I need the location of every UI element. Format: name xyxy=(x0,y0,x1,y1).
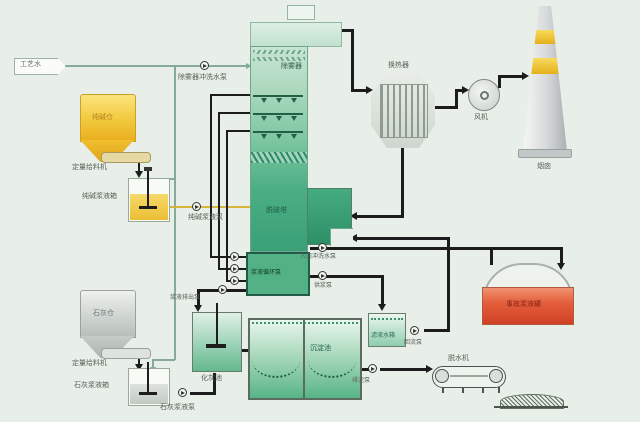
circ-bottom-1 xyxy=(210,256,247,258)
drain-line-v2 xyxy=(490,249,493,265)
sludge-pump-icon xyxy=(368,364,377,373)
discharge-pump-label: 浆液排出泵 xyxy=(170,295,200,302)
gas-arrow-into-ggh xyxy=(366,86,373,94)
water-branch-lime-h xyxy=(152,359,175,361)
slaking-agitator-paddle xyxy=(206,344,226,348)
lime-agitator-paddle xyxy=(139,392,157,395)
emergency-tank-label: 事故浆液罐 xyxy=(506,301,541,309)
lime-feeder xyxy=(101,348,151,359)
circ-pumps-label: 浆液循环泵 xyxy=(251,270,281,277)
spray-header-2 xyxy=(253,113,303,115)
return-line-h2 xyxy=(357,237,448,240)
soda-pump-icon xyxy=(192,202,201,211)
slaking-tank-label: 化灰池 xyxy=(201,375,222,383)
sludge-line-h2 xyxy=(380,368,428,371)
spray-nozzle xyxy=(261,98,267,103)
spray-nozzle xyxy=(276,98,282,103)
fan-hub xyxy=(480,91,489,100)
spray-nozzle xyxy=(276,116,282,121)
heat-exchanger-label: 换热器 xyxy=(388,62,409,70)
supply-pump-label: 供浆泵 xyxy=(314,283,332,290)
spray-nozzle xyxy=(291,134,297,139)
soda-silo-label: 纯碱仓 xyxy=(92,114,113,122)
dewaterer-label: 脱水机 xyxy=(448,355,469,363)
tower-packing xyxy=(251,152,307,163)
ground-line xyxy=(494,406,568,408)
return-line-v xyxy=(447,237,450,332)
lime-silo-label: 石灰仓 xyxy=(93,310,114,318)
discharge-pump-icon xyxy=(218,285,227,294)
gas-arrow-into-stack xyxy=(522,72,529,80)
spray-nozzle xyxy=(261,116,267,121)
chimney-base xyxy=(518,149,572,158)
circ-top-2 xyxy=(218,112,253,114)
spray-header-3 xyxy=(253,131,303,133)
chimney-band-2 xyxy=(523,58,567,74)
mist-eliminator-band-1 xyxy=(253,50,305,54)
tower-inlet-notch xyxy=(330,228,353,246)
dewaterer-roller-right xyxy=(489,369,503,383)
tower-top-box xyxy=(287,5,315,20)
tower-label: 脱硫塔 xyxy=(266,207,287,215)
dewaterer-roller-left xyxy=(435,369,449,383)
supply-pump-icon xyxy=(318,271,327,280)
filtrate-weir xyxy=(371,318,403,320)
inlet-wash-pump-label: 入口冲洗水泵 xyxy=(300,254,336,261)
feeder-drop-top-arrow xyxy=(135,171,143,178)
process-water-label: 工艺水 xyxy=(20,61,41,69)
process-flow-diagram: 工艺水 纯碱仓 定量给料机 纯碱浆液箱 纯碱浆液泵 除雾器冲洗水泵 除雾器 脱硫… xyxy=(0,0,640,422)
mist-eliminator-label: 除雾器 xyxy=(281,63,302,71)
fan-label: 风机 xyxy=(474,114,488,122)
sludge-pump-label: 排泥泵 xyxy=(352,378,370,385)
heat-exchanger-tubes xyxy=(380,84,428,138)
return-pump-icon xyxy=(410,326,419,335)
gas-line-ggh-to-tower-v xyxy=(401,148,404,218)
sedimentation-divider xyxy=(303,318,305,400)
spray-nozzle xyxy=(276,134,282,139)
soda-feeder xyxy=(101,152,151,163)
drain-line-h xyxy=(310,247,563,250)
sedimentation-label: 沉淀池 xyxy=(310,345,331,353)
slaking-agitator-shaft xyxy=(216,303,218,347)
soda-agitator-shaft xyxy=(147,170,149,208)
dewaterer-leg xyxy=(442,387,444,393)
drain-arrow-tank xyxy=(557,263,565,270)
soda-agitator-motor xyxy=(144,167,152,171)
mist-eliminator-band-2 xyxy=(253,57,305,61)
soda-pump-label: 纯碱浆液泵 xyxy=(188,214,223,222)
supply-arrow xyxy=(378,304,386,311)
spray-nozzle xyxy=(291,98,297,103)
lime-agitator-shaft xyxy=(147,362,149,394)
gas-line-fan-to-stack-h xyxy=(498,75,523,78)
gas-line-ggh-to-tower-h xyxy=(357,215,404,218)
soda-feeder-label: 定量给料机 xyxy=(72,164,107,172)
return-pump-label: 回流泵 xyxy=(404,340,422,347)
filtrate-tank-label: 滤液水箱 xyxy=(371,333,395,340)
circulation-pump-icon xyxy=(230,276,239,285)
discharge-arrow xyxy=(194,305,202,312)
lime-pump-label: 石灰浆液泵 xyxy=(160,404,195,412)
scraper-curve-1 xyxy=(252,342,300,378)
gas-line-tower-to-ggh-h2 xyxy=(351,89,367,92)
soda-tank-label: 纯碱浆液箱 xyxy=(82,193,117,201)
dewaterer-leg xyxy=(482,387,484,393)
circ-riser-2 xyxy=(218,113,220,270)
water-line-vertical xyxy=(174,66,176,360)
chimney-band-1 xyxy=(523,30,567,44)
dewaterer-leg xyxy=(462,387,464,393)
sedimentation-weir xyxy=(252,322,358,324)
water-line-main xyxy=(62,65,252,67)
circ-top-3 xyxy=(226,130,253,132)
lime-tank-label: 石灰浆液箱 xyxy=(74,382,109,390)
spray-header-1 xyxy=(253,95,303,97)
lime-feeder-label: 定量给料机 xyxy=(72,360,107,368)
dewaterer-leg xyxy=(498,387,500,393)
dewaterer-belt-line xyxy=(450,375,488,377)
supply-line-v xyxy=(381,275,384,305)
circ-top-1 xyxy=(210,94,253,96)
chimney xyxy=(523,6,567,151)
gas-line-ggh-to-fan-v xyxy=(455,91,458,109)
mist-wash-pump-label: 除雾器冲洗水泵 xyxy=(178,74,227,82)
gas-line-tower-to-ggh-v xyxy=(351,29,354,92)
tower-header xyxy=(250,22,342,47)
spray-nozzle xyxy=(261,134,267,139)
inlet-wash-pump-icon xyxy=(318,243,327,252)
spray-nozzle xyxy=(291,116,297,121)
mist-wash-pump-icon xyxy=(200,61,209,70)
lime-pump-icon xyxy=(178,388,187,397)
tower-body xyxy=(250,46,308,252)
circulation-pump-icon xyxy=(230,264,239,273)
circ-riser-3 xyxy=(226,131,228,282)
circulation-pump-icon xyxy=(230,252,239,261)
soda-agitator-paddle xyxy=(139,206,157,209)
chimney-label: 烟囱 xyxy=(537,163,551,171)
circ-riser-1 xyxy=(210,95,212,258)
